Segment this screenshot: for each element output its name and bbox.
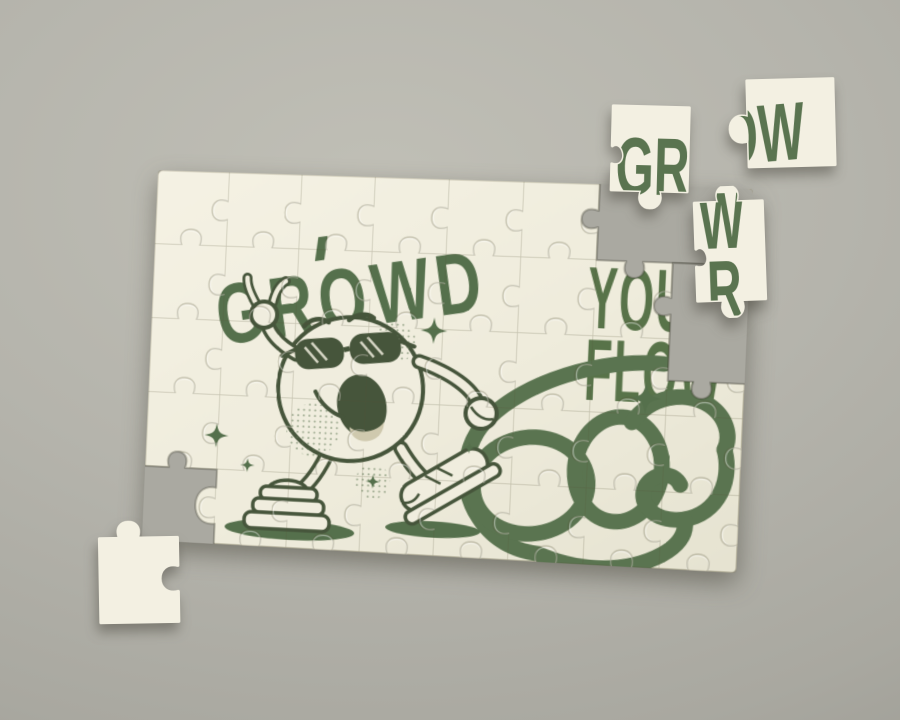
loose-piece-ow[interactable]: OW xyxy=(725,73,840,176)
piece-wr-bottom-text: R xyxy=(706,243,744,320)
main-puzzle[interactable]: GROWD GROW YOUR FLOW xyxy=(142,170,753,573)
loose-piece-wr[interactable]: W R xyxy=(682,184,777,319)
piece-ow-text: OW xyxy=(725,86,807,176)
piece-blank-shape xyxy=(99,521,179,622)
puzzle-mockup-scene: GROWD GROW YOUR FLOW xyxy=(0,0,900,720)
loose-piece-blank[interactable] xyxy=(91,515,193,629)
